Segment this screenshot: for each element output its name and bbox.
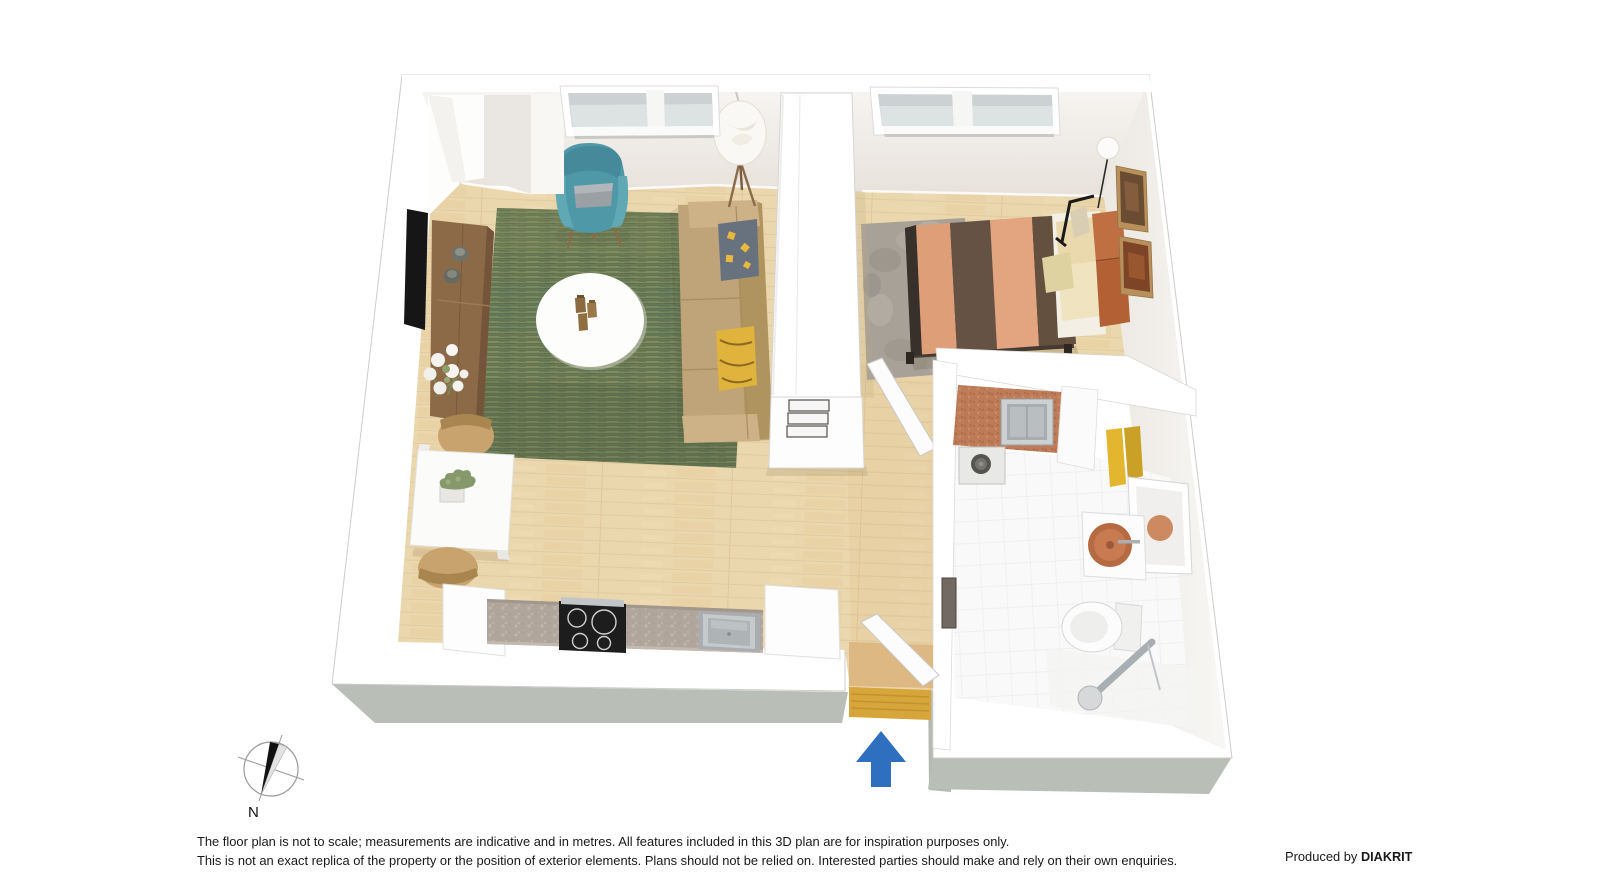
svg-text:Produced by DIAKRIT: Produced by DIAKRIT: [1285, 849, 1413, 864]
svg-text:The floor plan is not to scale: The floor plan is not to scale; measurem…: [197, 834, 1009, 849]
svg-text:This is not an exact replica o: This is not an exact replica of the prop…: [197, 853, 1177, 868]
svg-text:N: N: [248, 804, 259, 821]
